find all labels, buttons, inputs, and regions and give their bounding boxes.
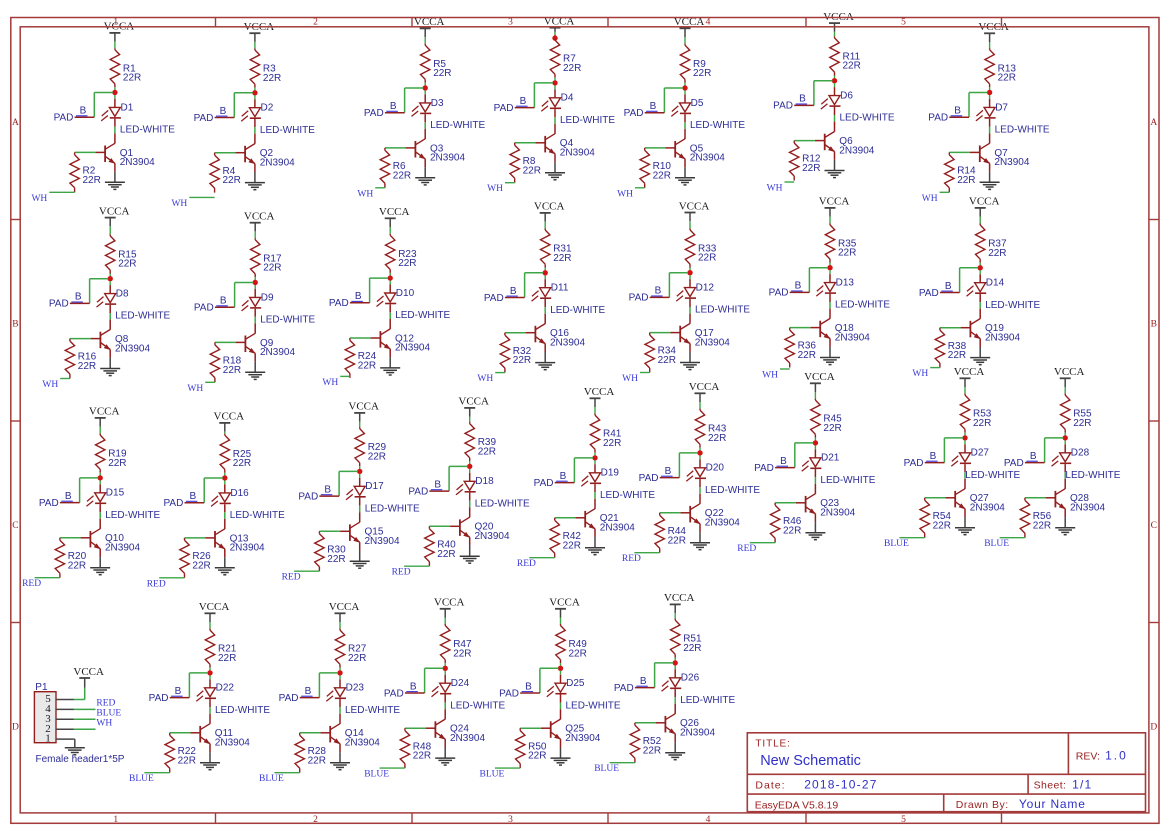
svg-text:22R: 22R	[348, 653, 366, 664]
svg-text:VCCA: VCCA	[819, 196, 850, 208]
svg-text:22R: 22R	[393, 170, 411, 181]
svg-text:VCCA: VCCA	[969, 196, 1000, 208]
svg-text:2N3904: 2N3904	[994, 157, 1029, 168]
svg-text:22R: 22R	[263, 263, 281, 274]
svg-text:VCCA: VCCA	[244, 211, 275, 223]
svg-text:WH: WH	[477, 374, 493, 384]
svg-text:2N3904: 2N3904	[680, 728, 715, 739]
svg-text:22R: 22R	[513, 355, 531, 366]
svg-text:BLUE: BLUE	[259, 774, 284, 784]
svg-text:D17: D17	[365, 481, 384, 492]
svg-text:2N3904: 2N3904	[365, 536, 400, 547]
svg-text:22R: 22R	[698, 253, 716, 264]
svg-text:PAD: PAD	[163, 498, 183, 509]
svg-text:D26: D26	[681, 673, 700, 684]
svg-text:B: B	[795, 281, 802, 292]
svg-text:22R: 22R	[108, 458, 126, 469]
svg-text:WH: WH	[622, 374, 638, 384]
svg-text:VCCA: VCCA	[199, 601, 230, 613]
svg-text:D28: D28	[1071, 448, 1090, 459]
svg-text:D8: D8	[116, 289, 129, 300]
svg-text:PAD: PAD	[928, 113, 948, 124]
svg-text:D10: D10	[396, 288, 415, 299]
svg-text:22R: 22R	[178, 755, 196, 766]
svg-text:D: D	[12, 723, 19, 733]
svg-text:22R: 22R	[658, 355, 676, 366]
svg-text:LED-WHITE: LED-WHITE	[550, 305, 605, 316]
svg-text:LED-WHITE: LED-WHITE	[475, 498, 530, 509]
svg-text:22R: 22R	[957, 175, 975, 186]
svg-text:LED-WHITE: LED-WHITE	[365, 503, 420, 514]
svg-text:22R: 22R	[563, 540, 581, 551]
svg-text:LED-WHITE: LED-WHITE	[985, 300, 1040, 311]
svg-text:PAD: PAD	[904, 458, 924, 469]
svg-text:Date:: Date:	[755, 779, 785, 791]
svg-text:B: B	[780, 456, 787, 467]
svg-text:BLUE: BLUE	[364, 770, 389, 780]
svg-text:2N3904: 2N3904	[120, 157, 155, 168]
svg-text:22R: 22R	[653, 170, 671, 181]
svg-text:2N3904: 2N3904	[105, 543, 140, 554]
svg-text:WH: WH	[762, 371, 778, 381]
svg-text:D21: D21	[821, 453, 840, 464]
svg-text:RED: RED	[96, 699, 115, 709]
svg-text:LED-WHITE: LED-WHITE	[115, 311, 170, 322]
svg-text:2018-10-27: 2018-10-27	[804, 777, 877, 791]
svg-text:PAD: PAD	[1004, 458, 1024, 469]
svg-text:D5: D5	[691, 98, 704, 109]
svg-text:PAD: PAD	[484, 293, 504, 304]
svg-text:22R: 22R	[327, 554, 345, 565]
svg-text:2N3904: 2N3904	[690, 153, 725, 164]
svg-text:2N3904: 2N3904	[560, 148, 595, 159]
svg-text:VCCA: VCCA	[689, 381, 720, 393]
svg-text:VCCA: VCCA	[584, 386, 615, 398]
svg-text:RED: RED	[147, 579, 166, 589]
svg-text:Sheet:: Sheet:	[1034, 779, 1067, 791]
svg-text:22R: 22R	[668, 535, 686, 546]
svg-text:22R: 22R	[223, 365, 241, 376]
svg-text:New Schematic: New Schematic	[760, 753, 861, 769]
svg-text:LED-WHITE: LED-WHITE	[995, 125, 1050, 136]
svg-text:WH: WH	[322, 378, 338, 388]
svg-text:1.0: 1.0	[1105, 749, 1128, 763]
svg-text:22R: 22R	[78, 361, 96, 372]
svg-text:VCCA: VCCA	[348, 401, 379, 413]
svg-text:EasyEDA V5.8.19: EasyEDA V5.8.19	[755, 800, 839, 812]
svg-text:2N3904: 2N3904	[705, 518, 740, 529]
svg-text:2N3904: 2N3904	[395, 343, 430, 354]
svg-text:D16: D16	[230, 488, 249, 499]
svg-text:22R: 22R	[838, 248, 856, 259]
svg-text:D1: D1	[121, 102, 134, 113]
svg-text:B: B	[80, 106, 87, 117]
svg-text:22R: 22R	[223, 175, 241, 186]
svg-text:PAD: PAD	[773, 101, 793, 112]
svg-text:4: 4	[706, 815, 711, 825]
svg-text:PAD: PAD	[194, 303, 214, 314]
svg-text:BLUE: BLUE	[96, 708, 121, 718]
svg-text:22R: 22R	[433, 68, 451, 79]
svg-text:WH: WH	[617, 189, 633, 199]
svg-text:VCCA: VCCA	[458, 396, 489, 408]
svg-text:5: 5	[901, 18, 906, 28]
svg-text:PAD: PAD	[384, 688, 404, 699]
svg-text:PAD: PAD	[364, 108, 384, 119]
svg-text:B: B	[954, 106, 961, 117]
svg-text:1: 1	[45, 733, 51, 745]
svg-text:D6: D6	[840, 91, 853, 102]
svg-text:WH: WH	[912, 369, 928, 379]
svg-text:RED: RED	[737, 544, 756, 554]
svg-text:B: B	[665, 466, 672, 477]
svg-text:Female header1*5P: Female header1*5P	[36, 754, 125, 765]
svg-text:BLUE: BLUE	[479, 770, 504, 780]
svg-text:22R: 22R	[398, 258, 416, 269]
svg-text:PAD: PAD	[624, 108, 644, 119]
svg-text:2N3904: 2N3904	[970, 503, 1005, 514]
svg-text:VCCA: VCCA	[804, 371, 835, 383]
svg-text:B: B	[525, 681, 532, 692]
svg-text:2N3904: 2N3904	[820, 508, 855, 519]
svg-text:PAD: PAD	[499, 688, 519, 699]
svg-text:B: B	[640, 676, 647, 687]
svg-text:PAD: PAD	[329, 298, 349, 309]
svg-text:LED-WHITE: LED-WHITE	[395, 310, 450, 321]
svg-text:B: B	[650, 101, 657, 112]
svg-text:LED-WHITE: LED-WHITE	[260, 125, 315, 136]
svg-text:2N3904: 2N3904	[835, 332, 870, 343]
svg-text:WH: WH	[31, 194, 47, 204]
svg-text:22R: 22R	[358, 361, 376, 372]
svg-text:B: B	[930, 451, 937, 462]
svg-text:2N3904: 2N3904	[430, 153, 465, 164]
svg-text:2N3904: 2N3904	[550, 337, 585, 348]
svg-text:D4: D4	[561, 93, 574, 104]
svg-text:22R: 22R	[83, 175, 101, 186]
svg-text:22R: 22R	[1073, 418, 1091, 429]
svg-text:D19: D19	[601, 468, 620, 479]
svg-text:D22: D22	[216, 683, 235, 694]
svg-text:22R: 22R	[453, 648, 471, 659]
svg-text:LED-WHITE: LED-WHITE	[260, 315, 315, 326]
svg-text:VCCA: VCCA	[434, 597, 465, 609]
svg-text:B: B	[75, 292, 82, 303]
svg-text:22R: 22R	[988, 248, 1006, 259]
svg-text:2: 2	[313, 815, 318, 825]
svg-text:B: B	[189, 491, 196, 502]
svg-text:WH: WH	[42, 380, 58, 390]
svg-text:B: B	[560, 471, 567, 482]
svg-text:B: B	[390, 101, 397, 112]
svg-text:LED-WHITE: LED-WHITE	[566, 700, 621, 711]
svg-text:VCCA: VCCA	[73, 666, 104, 678]
svg-text:Your Name: Your Name	[1019, 797, 1086, 811]
svg-text:PAD: PAD	[149, 693, 169, 704]
svg-text:2N3904: 2N3904	[1070, 503, 1105, 514]
svg-text:PAD: PAD	[408, 486, 428, 497]
svg-text:2N3904: 2N3904	[230, 543, 265, 554]
svg-text:D27: D27	[971, 448, 990, 459]
svg-text:B: B	[220, 296, 227, 307]
svg-text:RED: RED	[392, 568, 411, 578]
svg-text:LED-WHITE: LED-WHITE	[230, 510, 285, 521]
svg-text:PAD: PAD	[298, 491, 318, 502]
svg-text:B: B	[355, 291, 362, 302]
svg-text:RED: RED	[622, 554, 641, 564]
svg-text:LED-WHITE: LED-WHITE	[680, 695, 735, 706]
svg-text:PAD: PAD	[769, 288, 789, 299]
svg-text:22R: 22R	[263, 73, 281, 84]
svg-text:VCCA: VCCA	[329, 601, 360, 613]
svg-text:D24: D24	[451, 678, 470, 689]
svg-text:22R: 22R	[783, 525, 801, 536]
svg-text:A: A	[12, 118, 19, 128]
svg-text:PAD: PAD	[494, 103, 514, 114]
svg-text:4: 4	[706, 18, 711, 28]
svg-text:VCCA: VCCA	[379, 206, 410, 218]
svg-text:LED-WHITE: LED-WHITE	[820, 475, 875, 486]
svg-text:2N3904: 2N3904	[260, 347, 295, 358]
svg-text:3: 3	[508, 18, 513, 28]
svg-text:WH: WH	[487, 184, 503, 194]
svg-text:PAD: PAD	[629, 293, 649, 304]
svg-text:22R: 22R	[823, 423, 841, 434]
svg-text:2N3904: 2N3904	[839, 145, 874, 156]
svg-text:PAD: PAD	[279, 693, 299, 704]
svg-text:REV:: REV:	[1076, 751, 1100, 763]
svg-text:LED-WHITE: LED-WHITE	[215, 705, 270, 716]
svg-text:2N3904: 2N3904	[115, 343, 150, 354]
svg-text:WH: WH	[171, 199, 187, 209]
svg-text:D20: D20	[706, 463, 725, 474]
svg-text:2N3904: 2N3904	[475, 531, 510, 542]
svg-text:B: B	[12, 320, 18, 330]
svg-text:B: B	[510, 286, 517, 297]
svg-text:22R: 22R	[68, 560, 86, 571]
svg-text:B: B	[434, 479, 441, 490]
svg-text:22R: 22R	[123, 73, 141, 84]
svg-text:WH: WH	[96, 718, 112, 728]
svg-text:22R: 22R	[478, 446, 496, 457]
svg-text:D23: D23	[346, 683, 365, 694]
svg-text:BLUE: BLUE	[594, 764, 619, 774]
svg-text:22R: 22R	[528, 751, 546, 762]
svg-text:2: 2	[313, 18, 318, 28]
svg-text:VCCA: VCCA	[954, 366, 985, 378]
svg-text:B: B	[324, 484, 331, 495]
svg-text:PAD: PAD	[639, 473, 659, 484]
svg-text:TITLE:: TITLE:	[755, 738, 790, 749]
svg-text:B: B	[1030, 451, 1037, 462]
svg-text:22R: 22R	[233, 458, 251, 469]
svg-text:B: B	[175, 686, 182, 697]
svg-text:D18: D18	[475, 476, 494, 487]
svg-text:B: B	[220, 106, 227, 117]
svg-text:PAD: PAD	[614, 683, 634, 694]
svg-text:PAD: PAD	[919, 288, 939, 299]
svg-text:PAD: PAD	[54, 113, 74, 124]
svg-text:2N3904: 2N3904	[985, 332, 1020, 343]
svg-text:RED: RED	[517, 559, 536, 569]
svg-text:B: B	[655, 286, 662, 297]
svg-text:B: B	[410, 681, 417, 692]
svg-text:B: B	[65, 491, 72, 502]
svg-text:22R: 22R	[553, 253, 571, 264]
svg-text:2N3904: 2N3904	[260, 157, 295, 168]
svg-text:WH: WH	[357, 189, 373, 199]
svg-text:22R: 22R	[437, 549, 455, 560]
svg-text:2N3904: 2N3904	[345, 738, 380, 749]
svg-text:B: B	[945, 281, 952, 292]
svg-text:VCCA: VCCA	[679, 200, 710, 212]
svg-text:LED-WHITE: LED-WHITE	[1065, 470, 1120, 481]
svg-text:B: B	[520, 96, 527, 107]
svg-text:BLUE: BLUE	[984, 539, 1009, 549]
svg-text:22R: 22R	[693, 68, 711, 79]
svg-text:D15: D15	[106, 488, 125, 499]
svg-text:22R: 22R	[802, 163, 820, 174]
svg-text:22R: 22R	[603, 438, 621, 449]
svg-text:LED-WHITE: LED-WHITE	[965, 470, 1020, 481]
svg-text:D25: D25	[566, 678, 585, 689]
svg-text:22R: 22R	[118, 259, 136, 270]
svg-text:22R: 22R	[998, 73, 1016, 84]
svg-text:2N3904: 2N3904	[565, 733, 600, 744]
svg-text:VCCA: VCCA	[89, 406, 120, 418]
svg-text:22R: 22R	[683, 643, 701, 654]
svg-text:B: B	[799, 94, 806, 105]
svg-text:VCCA: VCCA	[1054, 366, 1085, 378]
svg-text:2N3904: 2N3904	[215, 738, 250, 749]
svg-text:WH: WH	[767, 184, 783, 194]
svg-text:D9: D9	[261, 292, 274, 303]
svg-text:VCCA: VCCA	[549, 597, 580, 609]
svg-text:LED-WHITE: LED-WHITE	[345, 705, 400, 716]
svg-text:1/1: 1/1	[1072, 777, 1092, 791]
svg-text:LED-WHITE: LED-WHITE	[690, 120, 745, 131]
svg-text:22R: 22R	[569, 648, 587, 659]
svg-text:D14: D14	[986, 278, 1005, 289]
svg-text:22R: 22R	[1033, 520, 1051, 531]
svg-text:LED-WHITE: LED-WHITE	[120, 125, 175, 136]
svg-text:LED-WHITE: LED-WHITE	[560, 115, 615, 126]
svg-text:LED-WHITE: LED-WHITE	[600, 490, 655, 501]
svg-text:VCCA: VCCA	[664, 592, 695, 604]
svg-text:22R: 22R	[523, 165, 541, 176]
svg-text:VCCA: VCCA	[99, 205, 130, 217]
svg-text:D12: D12	[696, 283, 715, 294]
svg-text:D2: D2	[261, 103, 274, 114]
svg-text:PAD: PAD	[754, 463, 774, 474]
svg-text:1: 1	[113, 815, 118, 825]
svg-text:LED-WHITE: LED-WHITE	[705, 485, 760, 496]
svg-text:LED-WHITE: LED-WHITE	[105, 510, 160, 521]
svg-text:22R: 22R	[308, 755, 326, 766]
svg-text:22R: 22R	[218, 653, 236, 664]
svg-text:BLUE: BLUE	[129, 774, 154, 784]
svg-text:D3: D3	[431, 98, 444, 109]
svg-text:WH: WH	[187, 384, 203, 394]
svg-text:D7: D7	[995, 102, 1008, 113]
svg-text:A: A	[1150, 118, 1157, 128]
svg-text:22R: 22R	[708, 433, 726, 444]
svg-text:22R: 22R	[843, 61, 861, 72]
svg-text:C: C	[12, 521, 18, 531]
svg-text:PAD: PAD	[194, 113, 214, 124]
svg-text:22R: 22R	[413, 751, 431, 762]
svg-text:B: B	[1151, 320, 1157, 330]
svg-text:5: 5	[901, 815, 906, 825]
svg-text:VCCA: VCCA	[534, 201, 565, 213]
svg-text:2N3904: 2N3904	[600, 523, 635, 534]
svg-text:C: C	[1151, 521, 1157, 531]
svg-text:3: 3	[508, 815, 513, 825]
svg-text:22R: 22R	[368, 451, 386, 462]
svg-text:LED-WHITE: LED-WHITE	[840, 113, 895, 124]
svg-text:RED: RED	[282, 573, 301, 583]
svg-text:2N3904: 2N3904	[695, 337, 730, 348]
svg-text:D: D	[1150, 723, 1157, 733]
svg-text:2N3904: 2N3904	[450, 733, 485, 744]
svg-text:LED-WHITE: LED-WHITE	[450, 700, 505, 711]
svg-text:22R: 22R	[933, 520, 951, 531]
svg-text:Drawn By:: Drawn By:	[956, 799, 1009, 811]
svg-text:BLUE: BLUE	[884, 539, 909, 549]
svg-text:RED: RED	[22, 579, 41, 589]
svg-text:D11: D11	[551, 283, 569, 294]
svg-text:LED-WHITE: LED-WHITE	[430, 120, 485, 131]
svg-text:22R: 22R	[948, 350, 966, 361]
svg-text:PAD: PAD	[39, 498, 59, 509]
svg-text:D13: D13	[836, 278, 855, 289]
svg-text:22R: 22R	[563, 63, 581, 74]
svg-text:22R: 22R	[798, 350, 816, 361]
svg-text:PAD: PAD	[534, 478, 554, 489]
svg-text:1: 1	[113, 18, 118, 28]
svg-text:WH: WH	[922, 194, 938, 204]
svg-text:22R: 22R	[643, 745, 661, 756]
svg-text:22R: 22R	[973, 418, 991, 429]
svg-text:VCCA: VCCA	[214, 411, 245, 423]
svg-text:LED-WHITE: LED-WHITE	[835, 300, 890, 311]
svg-text:PAD: PAD	[49, 299, 69, 310]
svg-text:22R: 22R	[192, 560, 210, 571]
svg-text:LED-WHITE: LED-WHITE	[695, 305, 750, 316]
svg-text:B: B	[305, 686, 312, 697]
